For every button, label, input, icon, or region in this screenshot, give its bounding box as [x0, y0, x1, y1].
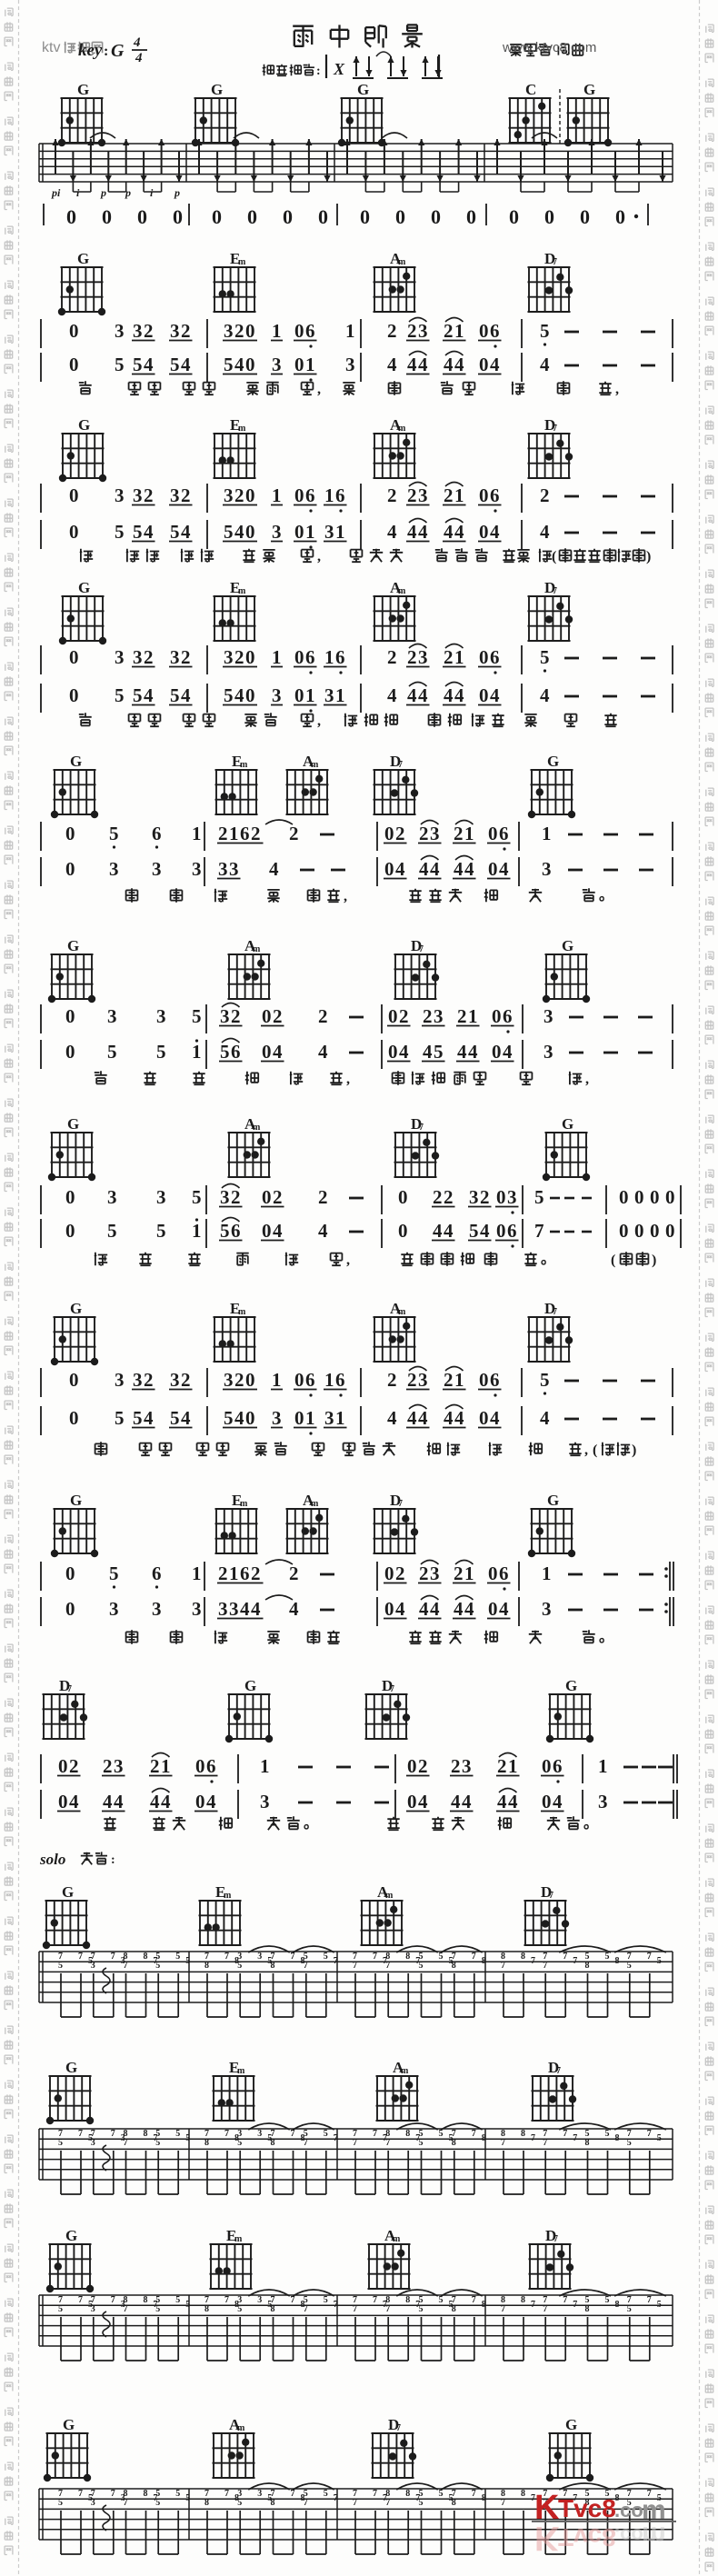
svg-text:32: 32	[220, 1005, 242, 1027]
svg-text:5: 5	[58, 1961, 63, 1971]
svg-text:02: 02	[58, 1755, 80, 1777]
svg-text:8: 8	[405, 2129, 410, 2139]
svg-text:0: 0	[102, 205, 112, 228]
svg-text:06: 06	[195, 1755, 217, 1777]
svg-text:X: X	[333, 60, 345, 78]
svg-text:8: 8	[615, 2300, 620, 2310]
svg-text:5: 5	[58, 2304, 63, 2314]
svg-text:5: 5	[324, 2129, 328, 2139]
svg-text:8: 8	[521, 2129, 525, 2139]
svg-text:8: 8	[615, 2133, 620, 2143]
svg-text:K: K	[534, 2519, 560, 2557]
svg-text:32: 32	[170, 484, 192, 506]
svg-text:540: 540	[224, 684, 256, 706]
svg-text:0: 0	[65, 1186, 75, 1208]
svg-text:6: 6	[152, 823, 162, 844]
svg-text:3: 3	[257, 1952, 262, 1962]
svg-text:7: 7	[373, 2129, 377, 2139]
svg-text:0: 0	[247, 205, 257, 228]
svg-text:44: 44	[150, 1791, 172, 1812]
svg-text:23: 23	[407, 484, 429, 506]
svg-text:3: 3	[115, 320, 125, 342]
svg-text:2: 2	[318, 1186, 328, 1208]
svg-text:3: 3	[257, 2489, 262, 2499]
svg-text:8: 8	[204, 2304, 209, 2314]
svg-text:7: 7	[501, 1961, 505, 1971]
svg-text:5: 5	[58, 2138, 63, 2148]
svg-text:5: 5	[237, 2498, 242, 2508]
svg-text:5: 5	[605, 2129, 610, 2139]
svg-text:1: 1	[260, 1755, 270, 1777]
svg-text:02: 02	[407, 1755, 429, 1777]
svg-text:31: 31	[324, 1407, 346, 1429]
svg-text:4: 4	[318, 1041, 328, 1063]
svg-text:5: 5	[107, 1041, 117, 1063]
svg-text:01: 01	[294, 684, 316, 706]
svg-text:5: 5	[192, 1186, 202, 1208]
svg-text::: :	[104, 44, 108, 59]
svg-text:0: 0	[283, 205, 293, 228]
svg-text:7: 7	[501, 2304, 505, 2314]
svg-text:4: 4	[540, 684, 550, 706]
svg-text:8: 8	[405, 1952, 410, 1962]
svg-text:7: 7	[111, 2129, 115, 2139]
svg-text:320: 320	[224, 484, 256, 506]
svg-text:1: 1	[192, 1220, 202, 1242]
svg-text:4: 4	[540, 354, 550, 375]
svg-text:04: 04	[488, 1598, 510, 1620]
svg-text:0: 0	[619, 1220, 629, 1242]
svg-text:3: 3	[109, 858, 119, 880]
svg-text:8: 8	[452, 2498, 456, 2508]
svg-text:4: 4	[540, 521, 550, 543]
svg-text:2: 2	[540, 484, 550, 506]
svg-text:7: 7	[353, 2304, 357, 2314]
svg-text:7: 7	[334, 2133, 338, 2143]
svg-text:8: 8	[405, 2489, 410, 2499]
svg-text:06: 06	[479, 646, 501, 668]
svg-text:2: 2	[387, 646, 397, 668]
svg-text:540: 540	[224, 521, 256, 543]
svg-text:0: 0	[665, 1220, 675, 1242]
svg-text:5: 5	[175, 2295, 180, 2305]
svg-text:03: 03	[496, 1186, 518, 1208]
svg-text:5: 5	[657, 2300, 662, 2310]
svg-text:54: 54	[133, 521, 155, 543]
svg-text:04: 04	[488, 858, 510, 880]
svg-text:0: 0	[650, 1220, 660, 1242]
svg-text:3: 3	[107, 1186, 117, 1208]
svg-text:44: 44	[444, 684, 465, 706]
svg-text:4: 4	[540, 1407, 550, 1429]
svg-text:44: 44	[103, 1791, 125, 1812]
svg-text:0: 0	[65, 858, 75, 880]
svg-text:7: 7	[373, 1952, 377, 1962]
svg-text:54: 54	[469, 1220, 491, 1242]
svg-text:5: 5	[439, 1952, 444, 1962]
svg-text:4: 4	[269, 858, 279, 880]
svg-text:0: 0	[69, 646, 79, 668]
svg-text:,: ,	[346, 1072, 350, 1087]
svg-text:5: 5	[175, 2129, 180, 2139]
svg-text:16: 16	[324, 484, 346, 506]
svg-text:7: 7	[111, 1952, 115, 1962]
svg-text:56: 56	[220, 1041, 242, 1063]
svg-text:4: 4	[135, 51, 143, 65]
svg-text:2: 2	[387, 320, 397, 342]
svg-text:0: 0	[69, 684, 79, 706]
svg-text:5: 5	[115, 1407, 125, 1429]
svg-text:31: 31	[324, 521, 346, 543]
svg-text:7: 7	[224, 2129, 229, 2139]
svg-text:1: 1	[272, 484, 282, 506]
svg-text:7: 7	[353, 2498, 357, 2508]
svg-text:7: 7	[647, 2129, 652, 2139]
svg-text:54: 54	[170, 684, 192, 706]
svg-text:7: 7	[124, 2304, 128, 2314]
svg-text:8: 8	[482, 2300, 486, 2310]
svg-text:3: 3	[115, 1369, 125, 1391]
svg-text:7: 7	[501, 2498, 505, 2508]
svg-text:7: 7	[472, 2129, 476, 2139]
svg-text:5: 5	[534, 1186, 544, 1208]
svg-text:0: 0	[580, 205, 590, 228]
svg-text:5: 5	[439, 2129, 444, 2139]
svg-text:3: 3	[91, 2138, 95, 2148]
svg-text:7: 7	[573, 1956, 577, 1966]
svg-text:0: 0	[398, 1220, 408, 1242]
svg-text:4: 4	[133, 35, 141, 50]
svg-text:0: 0	[65, 1220, 75, 1242]
svg-text:8: 8	[585, 2138, 590, 2148]
svg-text:32: 32	[133, 320, 155, 342]
svg-text:7: 7	[531, 2133, 535, 2143]
svg-text:5: 5	[627, 2304, 632, 2314]
svg-text:02: 02	[262, 1186, 284, 1208]
svg-text:23: 23	[419, 823, 441, 844]
svg-text:32: 32	[133, 1369, 155, 1391]
svg-text:540: 540	[224, 1407, 256, 1429]
svg-text:0: 0	[66, 205, 76, 228]
svg-text:1: 1	[192, 1563, 202, 1584]
svg-text:3: 3	[542, 1598, 552, 1620]
svg-text:,: ,	[317, 714, 321, 729]
svg-text:1: 1	[542, 823, 552, 844]
svg-text:5: 5	[540, 320, 550, 342]
svg-text:8: 8	[204, 2138, 209, 2148]
svg-text:solo: solo	[39, 1851, 65, 1868]
svg-text:7: 7	[543, 1961, 547, 1971]
svg-text:7: 7	[353, 1961, 357, 1971]
svg-text:0: 0	[634, 1220, 644, 1242]
svg-text:04: 04	[492, 1041, 514, 1063]
svg-text:0: 0	[615, 205, 625, 228]
svg-text:5: 5	[237, 1961, 242, 1971]
svg-text:5: 5	[237, 2304, 242, 2314]
svg-text:7: 7	[534, 1220, 544, 1242]
svg-text:5: 5	[657, 2133, 662, 2143]
svg-text:7: 7	[647, 2295, 652, 2305]
svg-text:32: 32	[133, 646, 155, 668]
svg-text:0: 0	[360, 205, 370, 228]
svg-text:7: 7	[111, 2295, 115, 2305]
svg-text:23: 23	[423, 1005, 444, 1027]
svg-text:): )	[652, 1253, 656, 1268]
svg-text:4: 4	[387, 354, 397, 375]
svg-text:p: p	[174, 186, 180, 199]
svg-text:1: 1	[272, 1369, 282, 1391]
svg-text:3: 3	[257, 2129, 262, 2139]
svg-text:5: 5	[175, 2489, 180, 2499]
svg-text:5: 5	[627, 1961, 632, 1971]
svg-text:02: 02	[262, 1005, 284, 1027]
svg-text:54: 54	[133, 1407, 155, 1429]
svg-text:06: 06	[294, 1369, 316, 1391]
svg-text:3: 3	[115, 484, 125, 506]
svg-text:0: 0	[544, 205, 554, 228]
svg-text:0: 0	[619, 1186, 629, 1208]
svg-text:21: 21	[444, 320, 465, 342]
svg-text:5: 5	[58, 2498, 63, 2508]
svg-text:5: 5	[540, 646, 550, 668]
svg-text:04: 04	[407, 1791, 429, 1812]
svg-text:7: 7	[78, 2129, 83, 2139]
svg-text:5: 5	[324, 2489, 328, 2499]
svg-text:21: 21	[444, 646, 465, 668]
svg-text:0: 0	[65, 1563, 75, 1584]
svg-text:8: 8	[204, 2498, 209, 2508]
svg-text:(: (	[552, 549, 556, 564]
svg-text:3: 3	[257, 2295, 262, 2305]
svg-text:32: 32	[170, 1369, 192, 1391]
svg-text:8: 8	[271, 2304, 275, 2314]
svg-text:p: p	[100, 186, 106, 199]
svg-text:44: 44	[497, 1791, 519, 1812]
svg-text:2: 2	[387, 1369, 397, 1391]
svg-text:7: 7	[334, 1956, 338, 1966]
svg-text:5: 5	[657, 1956, 662, 1966]
svg-text:5: 5	[439, 2295, 444, 2305]
svg-text:54: 54	[170, 354, 192, 375]
svg-text:5: 5	[155, 1961, 160, 1971]
svg-text:8: 8	[144, 2129, 148, 2139]
svg-text:3: 3	[109, 1598, 119, 1620]
svg-text:4: 4	[387, 521, 397, 543]
svg-text:5: 5	[115, 354, 125, 375]
svg-text:0: 0	[212, 205, 222, 228]
svg-text:0: 0	[65, 1041, 75, 1063]
svg-text:0: 0	[69, 354, 79, 375]
svg-text:5: 5	[324, 2295, 328, 2305]
svg-text:0: 0	[65, 1005, 75, 1027]
svg-text:7: 7	[304, 2498, 308, 2508]
svg-text:7: 7	[385, 2138, 390, 2148]
svg-text:7: 7	[291, 1952, 295, 1962]
svg-text:3: 3	[542, 858, 552, 880]
svg-text:3: 3	[272, 521, 282, 543]
svg-text:21: 21	[457, 1005, 479, 1027]
svg-text:p: p	[125, 186, 131, 199]
svg-text:G: G	[111, 41, 125, 61]
svg-text:0: 0	[431, 205, 441, 228]
svg-text:31: 31	[324, 684, 346, 706]
svg-text:1: 1	[345, 320, 355, 342]
svg-text:5: 5	[192, 1005, 202, 1027]
svg-text:www.ktvc8.com: www.ktvc8.com	[502, 40, 596, 55]
svg-text:06: 06	[488, 823, 510, 844]
svg-text:23: 23	[419, 1563, 441, 1584]
svg-text:5: 5	[185, 2300, 190, 2310]
svg-text:44: 44	[407, 1407, 429, 1429]
svg-text:0: 0	[665, 1186, 675, 1208]
svg-text:06: 06	[542, 1755, 563, 1777]
svg-text:3: 3	[272, 1407, 282, 1429]
svg-text:0: 0	[650, 1186, 660, 1208]
svg-text:06: 06	[479, 320, 501, 342]
svg-text:54: 54	[170, 1407, 192, 1429]
svg-text:8: 8	[452, 1961, 456, 1971]
svg-text:0: 0	[466, 205, 476, 228]
svg-text:2162: 2162	[218, 1563, 262, 1584]
svg-text:1: 1	[192, 1041, 202, 1063]
svg-text:8: 8	[271, 2138, 275, 2148]
svg-text:54: 54	[133, 354, 155, 375]
svg-text:54: 54	[170, 521, 192, 543]
svg-text:): )	[646, 549, 651, 564]
svg-text:02: 02	[388, 1005, 410, 1027]
svg-text:0: 0	[398, 1186, 408, 1208]
svg-text:7: 7	[124, 2498, 128, 2508]
svg-text:23: 23	[407, 646, 429, 668]
svg-text::: :	[316, 65, 321, 78]
svg-text:7: 7	[291, 2295, 295, 2305]
svg-text:3: 3	[91, 2304, 95, 2314]
svg-text:320: 320	[224, 320, 256, 342]
svg-text:5: 5	[156, 1220, 166, 1242]
svg-text:06: 06	[294, 320, 316, 342]
svg-text:23: 23	[407, 320, 429, 342]
svg-text:6: 6	[152, 1563, 162, 1584]
svg-text:2: 2	[289, 1563, 299, 1584]
svg-text:44: 44	[444, 521, 465, 543]
svg-text:,: ,	[317, 382, 321, 397]
svg-text:8: 8	[521, 1952, 525, 1962]
svg-text:44: 44	[444, 354, 465, 375]
svg-text:8: 8	[452, 2138, 456, 2148]
svg-text:7: 7	[334, 2300, 338, 2310]
svg-text:8: 8	[615, 1956, 620, 1966]
svg-text:06: 06	[294, 646, 316, 668]
svg-text:04: 04	[479, 354, 501, 375]
svg-text:5: 5	[185, 2493, 190, 2503]
svg-text:44: 44	[407, 684, 429, 706]
svg-text:7: 7	[78, 2295, 83, 2305]
svg-text:3: 3	[260, 1791, 270, 1812]
svg-text:Tvc8: Tvc8	[558, 2494, 616, 2522]
svg-text:3: 3	[156, 1005, 166, 1027]
svg-text:7: 7	[647, 1952, 652, 1962]
svg-text:320: 320	[224, 1369, 256, 1391]
svg-text:7: 7	[304, 2138, 308, 2148]
svg-text:7: 7	[573, 2133, 577, 2143]
svg-text:7: 7	[385, 2498, 390, 2508]
svg-text:Tvc8: Tvc8	[558, 2523, 616, 2551]
svg-text:44: 44	[407, 521, 429, 543]
svg-text:3: 3	[91, 1961, 95, 1971]
svg-text:.co: .co	[614, 2499, 643, 2521]
svg-text:5: 5	[185, 1956, 190, 1966]
svg-text:7: 7	[501, 2138, 505, 2148]
svg-text:23: 23	[451, 1755, 473, 1777]
svg-text:8: 8	[521, 2295, 525, 2305]
svg-text:2: 2	[318, 1005, 328, 1027]
svg-text:22: 22	[433, 1186, 454, 1208]
svg-text:21: 21	[444, 1369, 465, 1391]
svg-text:7: 7	[531, 1956, 535, 1966]
svg-text:8: 8	[405, 2295, 410, 2305]
svg-text:21: 21	[454, 1563, 475, 1584]
svg-text:ktv: ktv	[42, 40, 60, 55]
svg-text:320: 320	[224, 646, 256, 668]
svg-text:8: 8	[482, 1956, 486, 1966]
svg-text:23: 23	[407, 1369, 429, 1391]
svg-text:2: 2	[387, 484, 397, 506]
svg-text:5: 5	[155, 2138, 160, 2148]
svg-text:4: 4	[387, 1407, 397, 1429]
svg-text:pi: pi	[51, 186, 61, 199]
svg-text:04: 04	[479, 684, 501, 706]
svg-text:16: 16	[324, 646, 346, 668]
svg-text:5: 5	[107, 1220, 117, 1242]
svg-text:): )	[632, 1443, 636, 1458]
svg-text:04: 04	[388, 1041, 410, 1063]
svg-text:2: 2	[289, 823, 299, 844]
svg-text:8: 8	[521, 2489, 525, 2499]
svg-text:。: 。	[599, 888, 613, 904]
svg-text:7: 7	[353, 2138, 357, 2148]
svg-text:3: 3	[192, 858, 202, 880]
svg-text:7: 7	[373, 2295, 377, 2305]
svg-text:44: 44	[419, 1598, 441, 1620]
svg-text:7: 7	[563, 2295, 567, 2305]
svg-text:8: 8	[585, 2304, 590, 2314]
svg-text:5: 5	[605, 1952, 610, 1962]
svg-text:5: 5	[155, 2304, 160, 2314]
svg-text:5: 5	[109, 823, 119, 844]
svg-text:44: 44	[454, 858, 475, 880]
svg-text:3: 3	[192, 1598, 202, 1620]
svg-text:8: 8	[204, 1961, 209, 1971]
svg-text:0: 0	[634, 1186, 644, 1208]
svg-text:0: 0	[509, 205, 519, 228]
svg-text:3: 3	[107, 1005, 117, 1027]
svg-text:8: 8	[482, 2493, 486, 2503]
svg-text:3: 3	[156, 1186, 166, 1208]
svg-text:44: 44	[454, 1598, 475, 1620]
svg-text:7: 7	[78, 2489, 83, 2499]
svg-text:0: 0	[69, 1369, 79, 1391]
svg-text:,: ,	[615, 382, 619, 397]
svg-text:21: 21	[454, 823, 475, 844]
svg-text:7: 7	[124, 2138, 128, 2148]
svg-text:1: 1	[272, 646, 282, 668]
svg-text:01: 01	[294, 354, 316, 375]
svg-text:7: 7	[224, 2295, 229, 2305]
svg-text:5: 5	[605, 2295, 610, 2305]
svg-text:3: 3	[345, 354, 355, 375]
svg-text:5: 5	[155, 2498, 160, 2508]
svg-text:32: 32	[469, 1186, 491, 1208]
